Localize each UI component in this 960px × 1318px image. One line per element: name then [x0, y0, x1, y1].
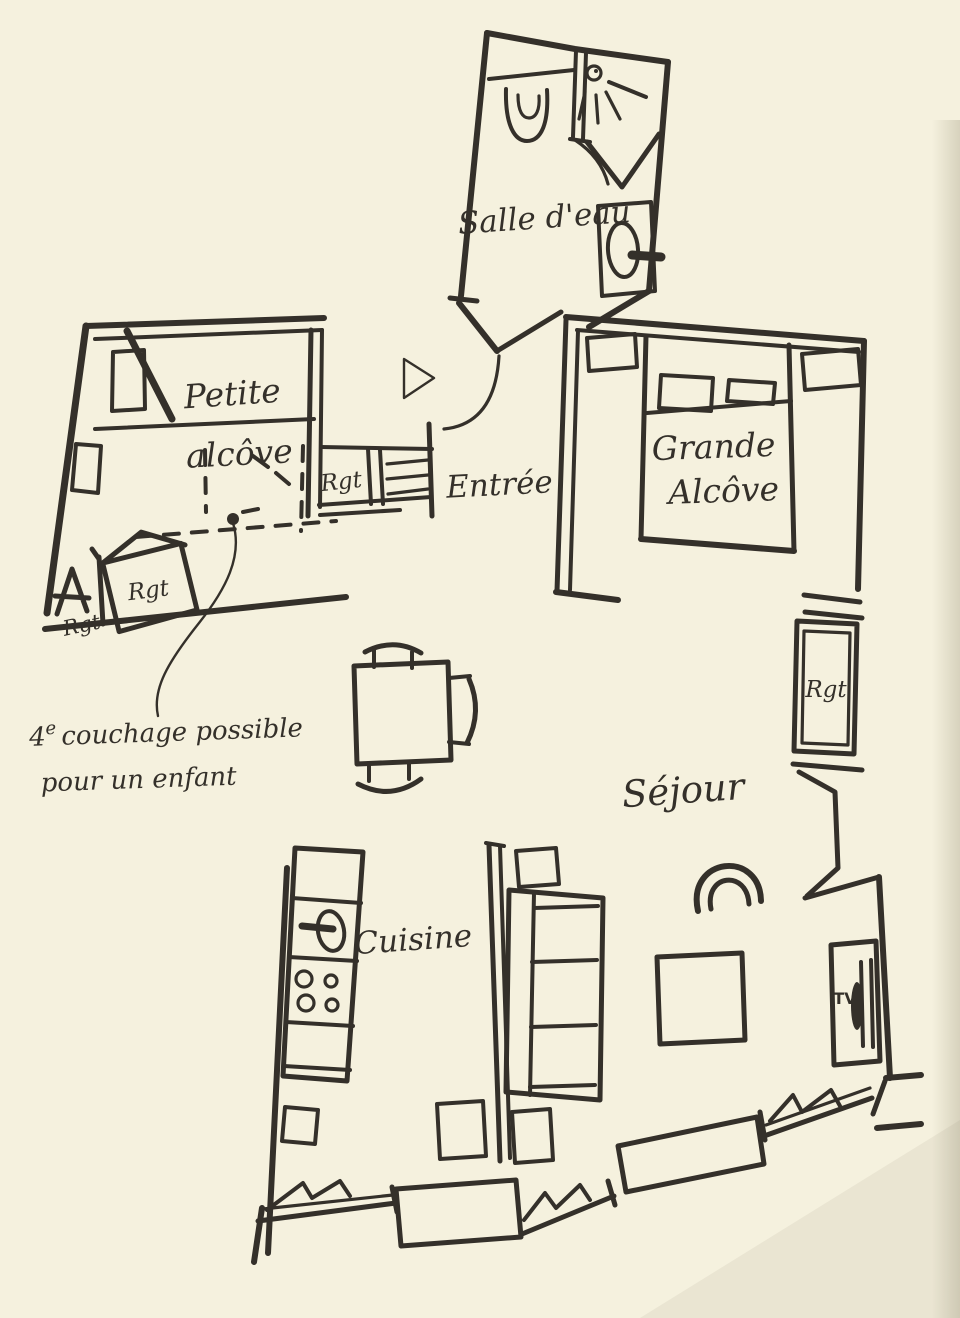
shower-icon [575, 66, 659, 187]
annotation-note: 4ecouchage possible pour un enfant [27, 709, 305, 799]
pillow [659, 375, 713, 411]
room-label-sejour: Séjour [621, 765, 749, 817]
chair-icon [449, 676, 476, 744]
room-label-grande-alcove-1: Grande [651, 425, 776, 468]
chair-icon [358, 763, 421, 791]
window-icon [72, 444, 101, 493]
wall [557, 320, 566, 591]
wall [254, 1208, 262, 1262]
room-petite-alcove: Rgt Rgt Petite alcôve [45, 318, 346, 716]
wall [47, 326, 86, 613]
stove-burners-icon [296, 971, 338, 1011]
tv-cabinet-icon: TV [831, 941, 880, 1065]
room-label-cuisine: Cuisine [353, 918, 473, 962]
room-label-grande-alcove-2: Alcôve [664, 469, 779, 512]
door-leaf [497, 312, 561, 351]
window-icon [618, 1117, 764, 1192]
armchair-icon [697, 866, 761, 911]
bed-icon [112, 331, 172, 419]
sofa-icon [506, 890, 603, 1100]
tap-icon [302, 926, 333, 929]
radiator-icon [522, 1181, 615, 1234]
cabinet-icon [437, 1101, 486, 1159]
room-cuisine: Cuisine [268, 848, 473, 1253]
room-sejour: Rgt TV Séjour [621, 621, 921, 1128]
storage-closet: Rgt [794, 621, 857, 754]
pillow [727, 380, 775, 404]
toilet-icon [506, 89, 547, 141]
radiator-icon [258, 1181, 397, 1221]
wall [873, 1081, 885, 1114]
wall [886, 1075, 921, 1078]
coffee-table-icon [657, 953, 745, 1044]
room-label-salle-deau: Salle d'eau [457, 194, 632, 242]
side-table-icon [512, 1109, 553, 1163]
tv-label: TV [833, 989, 857, 1008]
window-icon [802, 349, 861, 390]
cistern-line [489, 70, 574, 79]
window-icon [282, 1107, 318, 1144]
radiator-icon [760, 1088, 872, 1140]
wall [570, 331, 578, 590]
room-entree: Rgt Entrée [318, 312, 561, 516]
paper-corner-shadow [640, 1120, 960, 1318]
kitchen-counter-icon [283, 848, 363, 1081]
wall [556, 592, 618, 600]
tap-icon [632, 255, 661, 257]
storage-label: Rgt [318, 467, 364, 497]
wall-step [450, 298, 477, 301]
wall [459, 303, 497, 351]
entrance-arrow-icon [404, 359, 434, 398]
sofa-backrest [530, 893, 534, 1095]
room-label-petite-alcove-2: alcôve [185, 431, 294, 476]
wall [308, 330, 311, 516]
wall [804, 595, 860, 602]
side-table-icon [516, 848, 559, 887]
room-salle-deau: Salle d'eau [450, 33, 668, 351]
partition-wall [489, 845, 500, 1161]
room-label-entree: Entrée [444, 464, 553, 506]
sketch-paper: Salle d'eau Rgt Rgt [0, 0, 960, 1318]
door-swing-arc [444, 356, 499, 429]
sofa-cushions [530, 906, 598, 1087]
window-icon [396, 1180, 521, 1246]
wall-niche [799, 772, 838, 896]
storage-label: Rgt [804, 677, 847, 703]
floor-plan-sketch: Salle d'eau Rgt Rgt [0, 0, 960, 1318]
dining-table-icon [354, 645, 476, 792]
wall [577, 330, 859, 352]
table-top [354, 662, 451, 764]
annotation-line2: pour un enfant [40, 762, 237, 799]
shelf-lines [387, 460, 428, 494]
window-icon [587, 334, 637, 371]
wall [793, 764, 862, 770]
storage-label: Rgt [125, 575, 171, 606]
wall [461, 33, 487, 296]
kitchen-sink-icon [302, 909, 347, 953]
room-label-petite-alcove-1: Petite [182, 371, 282, 417]
wall [877, 1124, 921, 1128]
closet-shelves: Rgt [318, 424, 432, 516]
storage-label: Rgt [60, 609, 103, 641]
wall [86, 318, 324, 326]
partition-and-sofa [437, 843, 603, 1163]
partition-wall [570, 51, 590, 142]
wall [805, 612, 862, 618]
annotation-line1: 4ecouchage possible [27, 709, 303, 753]
bed-edge [95, 419, 314, 429]
room-grande-alcove: Grande Alcôve [556, 317, 864, 618]
